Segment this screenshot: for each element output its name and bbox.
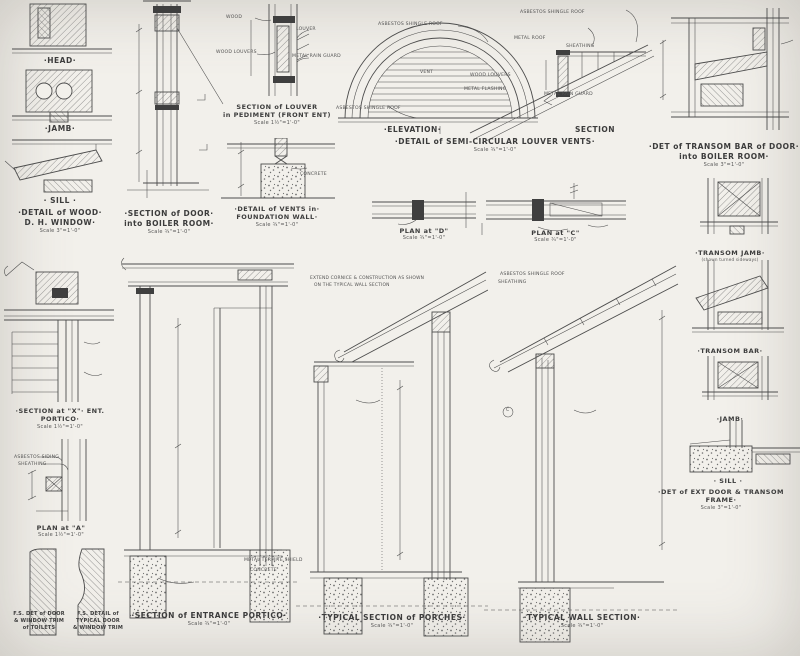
caption-plan-d: PLAN at "D" Scale ¾"=1'-0" xyxy=(368,227,480,242)
label-sheathing-plan-a: SHEATHING xyxy=(18,462,46,467)
label-concrete-vents: CONCRETE xyxy=(300,172,327,177)
caption-transom-bar: ·TRANSOM BAR· xyxy=(665,347,795,355)
caption-transom-jamb: ·TRANSOM JAMB· (shown turned sideways) xyxy=(660,249,800,263)
scale-ext-door-transom: Scale 3"=1'-0" xyxy=(642,505,800,512)
drawing-sheet: ·HEAD· ·JAMB· · SILL · ·DETAIL of WOOD· … xyxy=(0,0,800,656)
molding-profiles-drawing xyxy=(20,548,130,656)
scale-section-x: Scale 1½"=1'-0" xyxy=(0,424,120,431)
caption-sill: · SILL · xyxy=(0,196,120,206)
scale-door-boiler: Scale ¾"=1'-0" xyxy=(113,229,225,236)
caption-porches: ·TYPICAL SECTION of PORCHES· Scale ¾"=1'… xyxy=(296,613,488,629)
caption-jamb-2: ·JAMB· xyxy=(680,415,780,423)
label-shingle-right: ASBESTOS SHINGLE ROOF xyxy=(520,10,585,15)
scale-porches: Scale ¾"=1'-0" xyxy=(296,623,488,630)
label-wood: WOOD xyxy=(226,15,242,20)
label-shingle-wall: ASBESTOS SHINGLE ROOF xyxy=(500,272,565,277)
scale-plan-c: Scale ¾"=1'-0" xyxy=(478,237,633,244)
caption-plan-a: PLAN at "A" Scale 1½"=1'-0" xyxy=(0,524,122,539)
caption-dh-window-title: ·DETAIL of WOOD· D. H. WINDOW· Scale 3"=… xyxy=(0,208,120,234)
section-x-portico-drawing xyxy=(0,252,118,412)
caption-door-boiler: ·SECTION of DOOR· into BOILER ROOM· Scal… xyxy=(113,209,225,235)
label-shingle-bottom: ASBESTOS SHINGLE ROOF xyxy=(336,106,401,111)
label-marker-c: C xyxy=(506,408,509,413)
caption-transom-jamb-sub: (shown turned sideways) xyxy=(660,257,800,262)
label-termite-shield: METAL TERMITE SHIELD xyxy=(244,558,303,563)
label-porch-note-2: ON THE TYPICAL WALL SECTION xyxy=(314,283,390,288)
label-sheathing: SHEATHING xyxy=(566,44,594,49)
wall-section-drawing xyxy=(484,250,680,656)
caption-elevation: ·ELEVATION· xyxy=(355,125,470,135)
caption-semi-louver-title: ·DETAIL of SEMI-CIRCULAR LOUVER VENTS· S… xyxy=(345,137,645,153)
scale-louver-pediment: Scale 1½"=1'-0" xyxy=(213,120,341,127)
caption-plan-c: PLAN at "C" Scale ¾"=1'-0" xyxy=(478,229,633,244)
caption-head: ·HEAD· xyxy=(0,56,120,66)
scale-plan-a: Scale 1½"=1'-0" xyxy=(0,532,122,539)
vents-foundation-detail-drawing xyxy=(213,138,341,254)
caption-section: SECTION xyxy=(545,125,645,135)
scale-entrance-portico: Scale ¾"=1'-0" xyxy=(118,621,300,628)
label-rain-guard-2: METAL RAIN GUARD xyxy=(544,92,593,97)
scale-plan-d: Scale ¾"=1'-0" xyxy=(368,235,480,242)
label-porch-note-1: EXTEND CORNICE & CONSTRUCTION AS SHOWN xyxy=(310,276,424,281)
label-vent: VENT xyxy=(420,70,433,75)
caption-vents-foundation: ·DETAIL of VENTS in· FOUNDATION WALL· Sc… xyxy=(213,205,341,228)
scale-wall-section: Scale ¾"=1'-0" xyxy=(484,623,680,630)
caption-ext-door-transom-title: ·DET of EXT DOOR & TRANSOM FRAME· Scale … xyxy=(642,488,800,511)
caption-transom-bar-boiler: ·DET of TRANSOM BAR of DOOR· into BOILER… xyxy=(648,142,800,168)
label-concrete-portico: CONCRETE xyxy=(250,568,277,573)
scale-vents-foundation: Scale ¾"=1'-0" xyxy=(213,222,341,229)
plan-c-drawing xyxy=(478,183,633,255)
entrance-portico-section-drawing xyxy=(118,248,300,656)
label-louver: LOUVER xyxy=(296,27,316,32)
plan-d-drawing xyxy=(368,188,480,252)
label-wood-louvers: WOOD LOUVERS xyxy=(216,50,257,55)
label-rain-guard-pediment: METAL RAIN GUARD xyxy=(292,54,341,59)
caption-jamb: ·JAMB· xyxy=(0,124,120,134)
scale-dh-window: Scale 3"=1'-0" xyxy=(0,228,120,235)
label-metal-roof: METAL ROOF xyxy=(514,36,546,41)
label-metal-flashing: METAL FLASHING xyxy=(464,87,506,92)
caption-louver-pediment: SECTION of LOUVER in PEDIMENT (FRONT ENT… xyxy=(213,103,341,126)
caption-wall-section: ·TYPICAL WALL SECTION· Scale ¾"=1'-0" xyxy=(484,613,680,629)
label-shingle-top: ASBESTOS SHINGLE ROOF xyxy=(378,22,443,27)
scale-semi-louver: Scale ¾"=1'-0" xyxy=(345,147,645,154)
caption-entrance-portico: ·SECTION of ENTRANCE PORTICO· Scale ¾"=1… xyxy=(118,611,300,627)
scale-transom-bar-boiler: Scale 3"=1'-0" xyxy=(648,162,800,169)
label-wood-louvers-2: WOOD LOUVERS xyxy=(470,73,511,78)
caption-fs-toilet-trim: F.S. DET of DOOR & WINDOW TRIM of TOILET… xyxy=(8,611,70,631)
caption-sill-2: · SILL · xyxy=(678,477,778,485)
label-sheathing-wall: SHEATHING xyxy=(498,280,526,285)
porches-section-drawing xyxy=(296,250,488,656)
caption-section-x: ·SECTION at "X"· ENT. PORTICO· Scale 1½"… xyxy=(0,407,120,430)
label-asbestos-siding: ASBESTOS SIDING xyxy=(14,455,59,460)
